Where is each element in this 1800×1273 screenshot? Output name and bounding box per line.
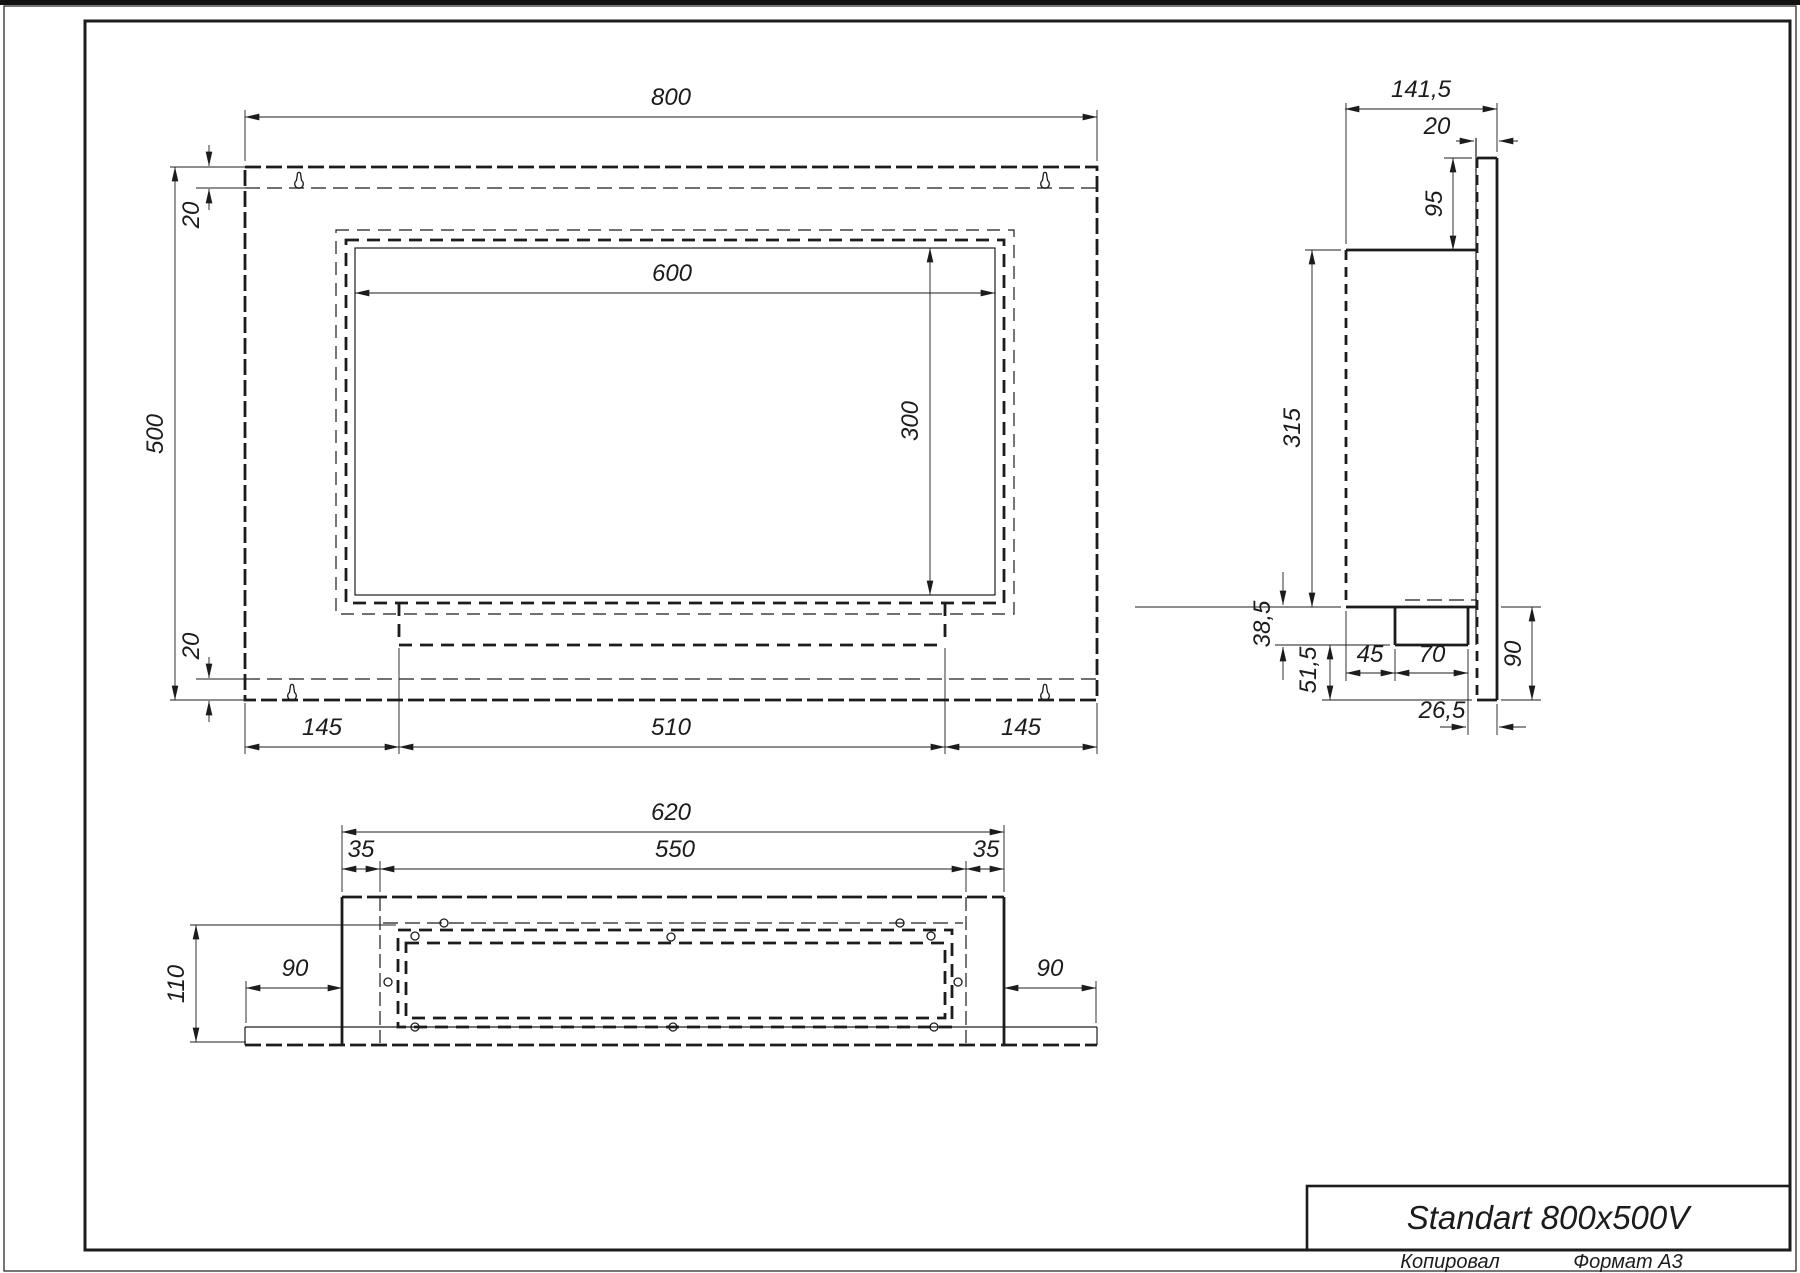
bottom-view: 620 35 550 35 110 90 90 [163, 799, 1097, 1045]
front-extension-lines [170, 110, 1097, 754]
dim-label-tray-depth: 38,5 [1249, 600, 1276, 647]
dim-label-depth-total: 141,5 [1391, 76, 1452, 103]
dim-front-offset-top: 20 [178, 145, 209, 229]
side-extension-lines [1135, 103, 1541, 735]
dim-label-opening-height: 300 [897, 400, 924, 441]
dim-side-depth-total: 141,5 [1345, 76, 1497, 109]
dim-label-fold-left: 35 [348, 836, 375, 863]
drawing-sheet: 800 500 20 20 600 300 145 51 [0, 0, 1800, 1273]
dim-label-margin-right: 145 [1001, 714, 1042, 741]
dim-bottom-overhang-left: 90 [246, 955, 342, 988]
drawing-frame [0, 0, 1800, 1271]
dim-side-tray-offset: 45 [1346, 641, 1395, 673]
dim-bottom-overhang-right: 90 [1004, 955, 1096, 988]
dim-label-overhang-left: 90 [282, 955, 309, 982]
side-view: 141,5 20 95 315 38,5 51,5 45 [1135, 76, 1541, 735]
dim-front-opening-width: 600 [355, 260, 995, 293]
dim-bottom-box-width: 620 [342, 799, 1004, 832]
dim-label-overhang-right: 90 [1037, 955, 1064, 982]
dim-side-panel-drop: 90 [1500, 607, 1532, 700]
dim-label-panel-drop: 90 [1500, 640, 1527, 667]
dim-label-body-height: 315 [1279, 407, 1306, 448]
bottom-extension-lines [190, 825, 1096, 1042]
dim-label-front-offset-top: 20 [178, 201, 205, 229]
front-view: 800 500 20 20 600 300 145 51 [142, 84, 1097, 754]
dim-label-front-offset-bottom: 20 [178, 632, 205, 660]
keyhole-icon [288, 172, 1050, 700]
screw-holes [384, 919, 962, 1031]
dim-label-inner-width: 550 [655, 836, 696, 863]
bottom-aperture-outer [398, 930, 952, 1027]
format-label: Формат A3 [1573, 1251, 1682, 1273]
dim-side-panel-thickness: 20 [1423, 113, 1518, 141]
dim-side-lower-depth: 51,5 [1295, 645, 1330, 700]
dim-front-width: 800 [245, 84, 1097, 117]
dim-side-tray-depth: 38,5 [1249, 572, 1283, 680]
inner-frame [85, 21, 1790, 1250]
dim-side-top-height: 95 [1421, 158, 1453, 250]
front-outer-body [245, 167, 1097, 700]
dim-side-panel-gap: 26,5 [1418, 697, 1526, 727]
dim-label-depth: 110 [163, 964, 190, 1003]
dim-label-opening-width: 600 [652, 260, 693, 287]
dim-label-panel-gap: 26,5 [1418, 697, 1466, 724]
dim-bottom-depth: 110 [163, 925, 196, 1042]
dim-label-front-width: 800 [651, 84, 692, 111]
dim-label-box-width: 620 [651, 799, 692, 826]
dim-label-top-height: 95 [1421, 190, 1448, 217]
dim-label-margin-left: 145 [302, 714, 343, 741]
dim-front-bottom-chain: 145 510 145 [245, 714, 1097, 747]
dim-bottom-inner-chain: 35 550 35 [342, 836, 1004, 869]
page-top-bar [0, 0, 1800, 5]
dim-label-fold-right: 35 [973, 836, 1000, 863]
dim-front-height: 500 [142, 167, 175, 700]
dim-label-tray-width: 70 [1419, 641, 1446, 668]
page-border [4, 6, 1796, 1271]
dim-front-offset-bottom: 20 [178, 632, 209, 722]
drawing-title: Standart 800x500V [1407, 1199, 1693, 1236]
dim-label-tray-offset: 45 [1357, 641, 1384, 668]
dim-label-tray-width: 510 [651, 714, 692, 741]
title-block: Standart 800x500V Копировал Формат A3 [1307, 1186, 1790, 1273]
bottom-aperture-inner [406, 943, 945, 1018]
dim-side-body-height: 315 [1279, 250, 1312, 607]
copied-by-label: Копировал [1400, 1251, 1499, 1273]
dim-front-opening-height: 300 [897, 248, 930, 595]
dim-label-panel-thickness: 20 [1423, 113, 1451, 140]
dim-label-lower-depth: 51,5 [1295, 646, 1322, 693]
dim-label-front-height: 500 [142, 413, 169, 454]
